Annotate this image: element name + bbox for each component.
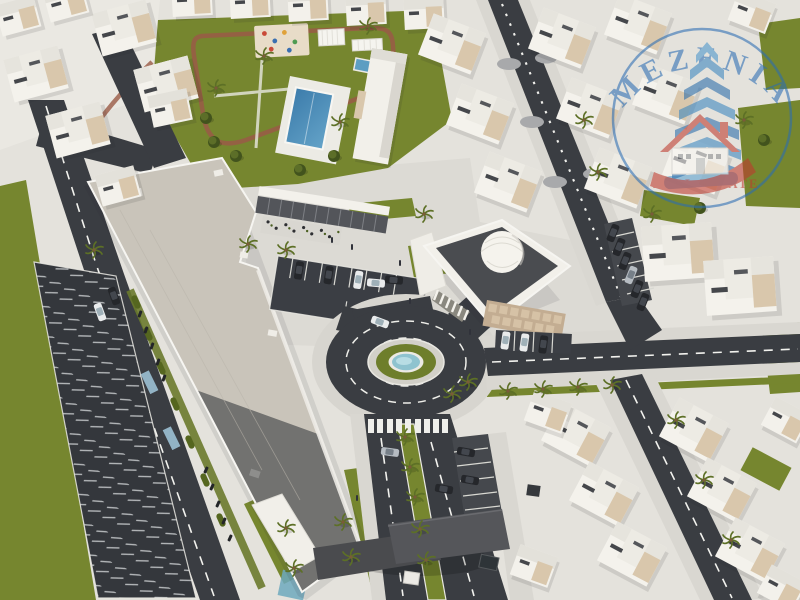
playground [254,23,310,58]
pergola [318,29,345,46]
villa [287,0,332,26]
masterplan-render: Aerial 3D architectural rendering of a r… [0,0,800,600]
villa [703,256,782,321]
villa [171,0,216,21]
guard-booth [526,484,540,497]
crosswalk [368,419,448,433]
site-plan-svg: MEZENIA REAL ESTATE [0,0,800,600]
brand-tagline: REAL ESTATE [653,177,760,191]
gate-house [403,571,420,585]
roundabout [326,306,486,418]
villa [229,0,274,23]
parked-car [385,275,404,285]
parked-car [367,278,386,288]
